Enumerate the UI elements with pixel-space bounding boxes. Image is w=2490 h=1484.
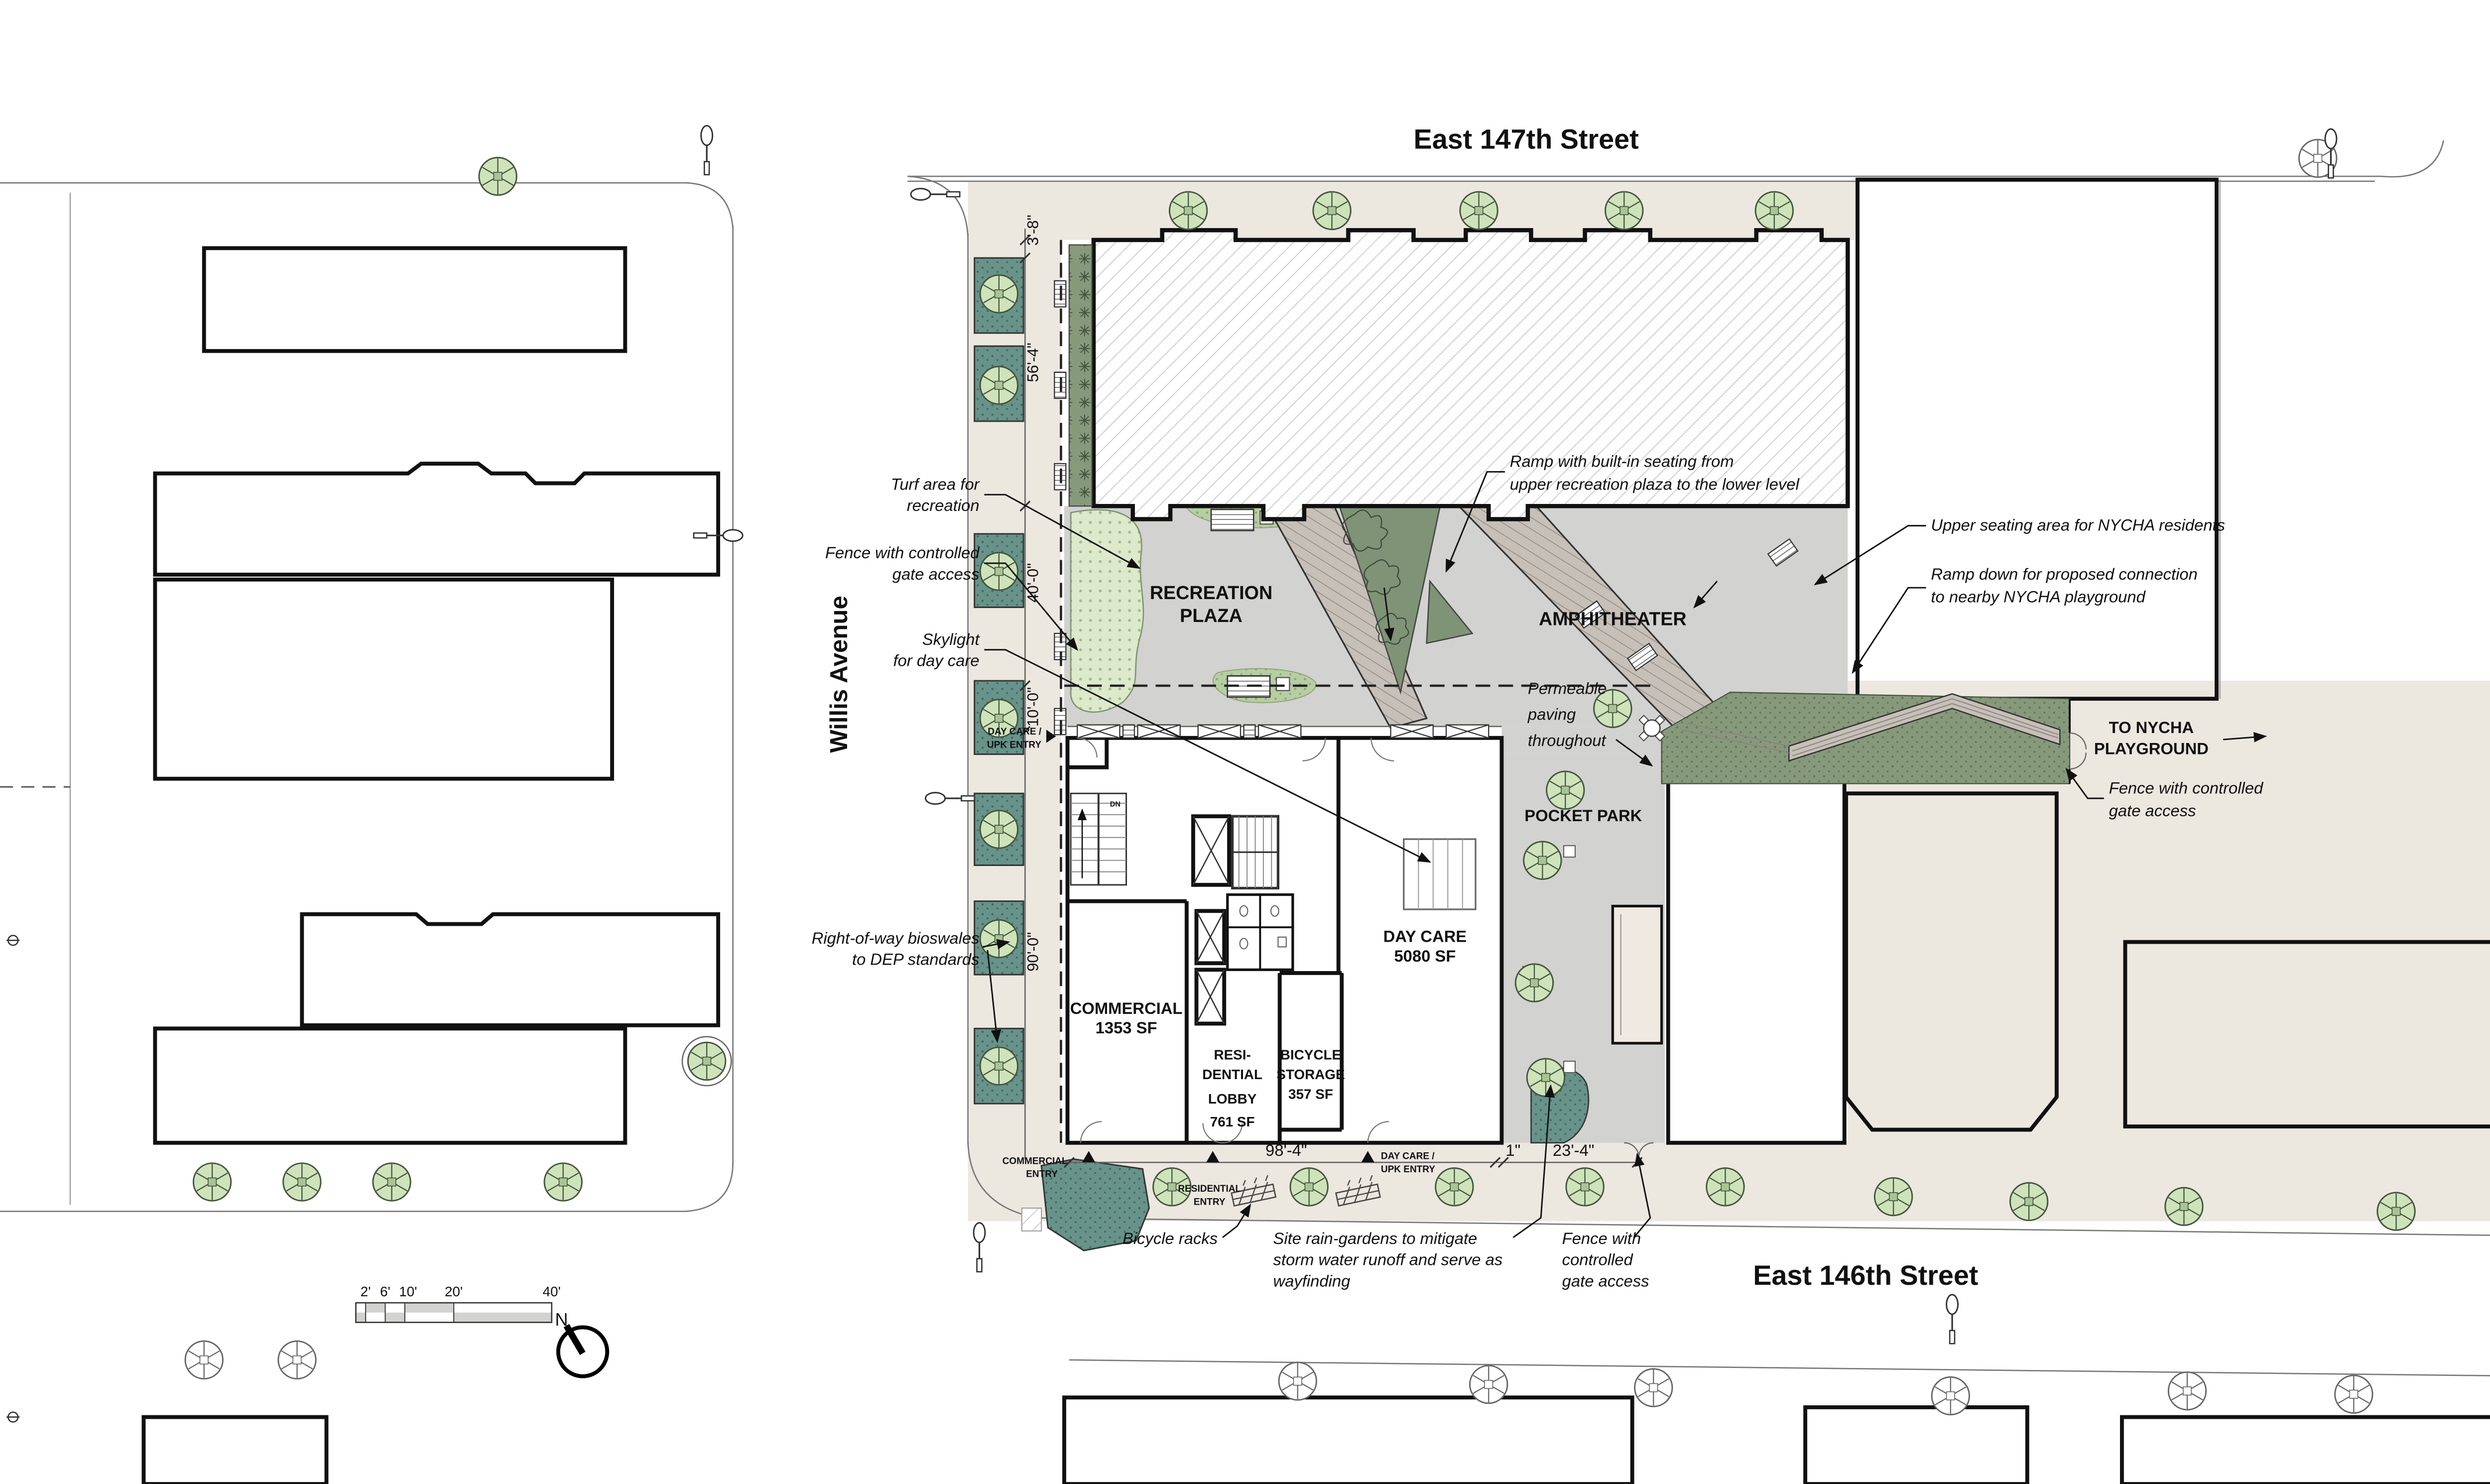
tree-icon (980, 1047, 1017, 1085)
fence-left-annotation: Fence with controlled (825, 543, 980, 562)
bioswales-annotation: Right-of-way bioswales (812, 929, 980, 947)
site-plan-page: DN (0, 0, 2490, 1484)
dim-inch: 1" (1505, 1141, 1520, 1159)
street-title-willis: Willis Avenue (825, 596, 853, 753)
scale-label: 10' (399, 1284, 417, 1299)
scale-label: 6' (380, 1284, 390, 1299)
rain-gardens-annotation: wayfinding (1273, 1271, 1351, 1290)
stair-dn-label: DN (1110, 800, 1120, 808)
tree-icon (980, 275, 1017, 312)
lobby-label: 761 SF (1210, 1114, 1255, 1129)
recreation-plaza-label: RECREATION (1150, 582, 1272, 603)
permeable-annotation: Permeable (1528, 679, 1607, 697)
terrace-connection (1662, 692, 2086, 784)
planting-bed (1069, 245, 1092, 506)
street-title-147: East 147th Street (1414, 124, 1639, 154)
fence-bottom-annotation: Fence with (1562, 1229, 1641, 1247)
rain-gardens-annotation: Site rain-gardens to mitigate (1273, 1229, 1478, 1247)
permeable-annotation: throughout (1528, 731, 1607, 749)
north-label: N (555, 1309, 568, 1330)
fence-bottom-annotation: gate access (1562, 1271, 1649, 1290)
street-title-146: East 146th Street (1753, 1260, 1978, 1291)
ramp-down-annotation: Ramp down for proposed connection (1931, 565, 2197, 583)
bicycle-storage-label: STORAGE (1276, 1067, 1345, 1082)
residential-entry-label: RESIDENTIAL (1178, 1184, 1241, 1194)
skylight-annotation: for day care (893, 651, 980, 670)
daycare-entry-label: UPK ENTRY (1381, 1164, 1435, 1175)
ramp-seating-annotation: Ramp with built-in seating from (1510, 452, 1734, 471)
fence-left-annotation: gate access (892, 565, 980, 583)
rain-gardens-annotation: storm water runoff and serve as (1273, 1250, 1503, 1269)
bicycle-storage-label: 357 SF (1288, 1086, 1333, 1102)
bicycle-storage-label: BICYCLE (1280, 1047, 1341, 1063)
fence-right-annotation: gate access (2109, 801, 2196, 820)
day-care-label: DAY CARE (1383, 927, 1467, 946)
scale-label: 2' (361, 1284, 371, 1299)
site-plan-drawing: DN (0, 0, 2490, 1484)
turf-annotation: Turf area for (891, 475, 981, 493)
dim-frontage: 98'-4" (1265, 1141, 1307, 1159)
commercial-entry-label: COMMERCIAL (1002, 1156, 1068, 1166)
ramp-seating-annotation: upper recreation plaza to the lower leve… (1510, 475, 1800, 493)
permeable-annotation: paving (1527, 705, 1576, 724)
tree-icon (980, 811, 1017, 848)
residential-entry-label: ENTRY (1194, 1197, 1226, 1207)
tree-icon (980, 367, 1017, 404)
fence-right-annotation: Fence with controlled (2109, 778, 2264, 797)
day-care-label: 5080 SF (1394, 947, 1456, 965)
lobby-label: DENTIAL (1202, 1067, 1262, 1082)
bioswales-annotation: to DEP standards (852, 950, 980, 968)
daycare-entry-label: DAY CARE / (1381, 1151, 1435, 1162)
commercial-entry-label: ENTRY (1026, 1169, 1058, 1180)
ramp-down-annotation: to nearby NYCHA playground (1931, 588, 2146, 606)
scale-label: 20' (445, 1284, 463, 1299)
daycare-side-entry-label: UPK ENTRY (987, 740, 1041, 750)
upper-seating-annotation: Upper seating area for NYCHA residents (1931, 515, 2225, 534)
dim-ground-floor: 90'-0" (1024, 932, 1042, 972)
commercial-label: COMMERCIAL (1070, 999, 1183, 1017)
bicycle-racks-annotation: Bicycle racks (1122, 1229, 1218, 1247)
recreation-plaza-label: PLAZA (1180, 605, 1243, 626)
fence-bottom-annotation: controlled (1562, 1250, 1634, 1269)
commercial-label: 1353 SF (1096, 1018, 1157, 1037)
to-nycha-label: TO NYCHA (2109, 718, 2194, 737)
dim-planting: 3'-8" (1024, 215, 1042, 246)
turf-annotation: recreation (907, 496, 980, 514)
dim-strip: 10'-0" (1024, 687, 1042, 727)
pocket-park-label: POCKET PARK (1524, 806, 1642, 825)
skylight-annotation: Skylight (922, 630, 981, 648)
lobby-label: LOBBY (1208, 1091, 1257, 1107)
amphitheater-label: AMPHITHEATER (1539, 609, 1687, 629)
tree-icon (980, 920, 1017, 957)
daycare-side-entry-label: DAY CARE / (988, 727, 1041, 737)
dim-pocket: 23'-4" (1553, 1141, 1594, 1159)
scale-label: 40' (543, 1284, 561, 1299)
lobby-label: RESI- (1214, 1047, 1250, 1063)
dim-building-depth: 56'-4" (1024, 343, 1042, 382)
to-nycha-label: PLAYGROUND (2094, 740, 2209, 758)
